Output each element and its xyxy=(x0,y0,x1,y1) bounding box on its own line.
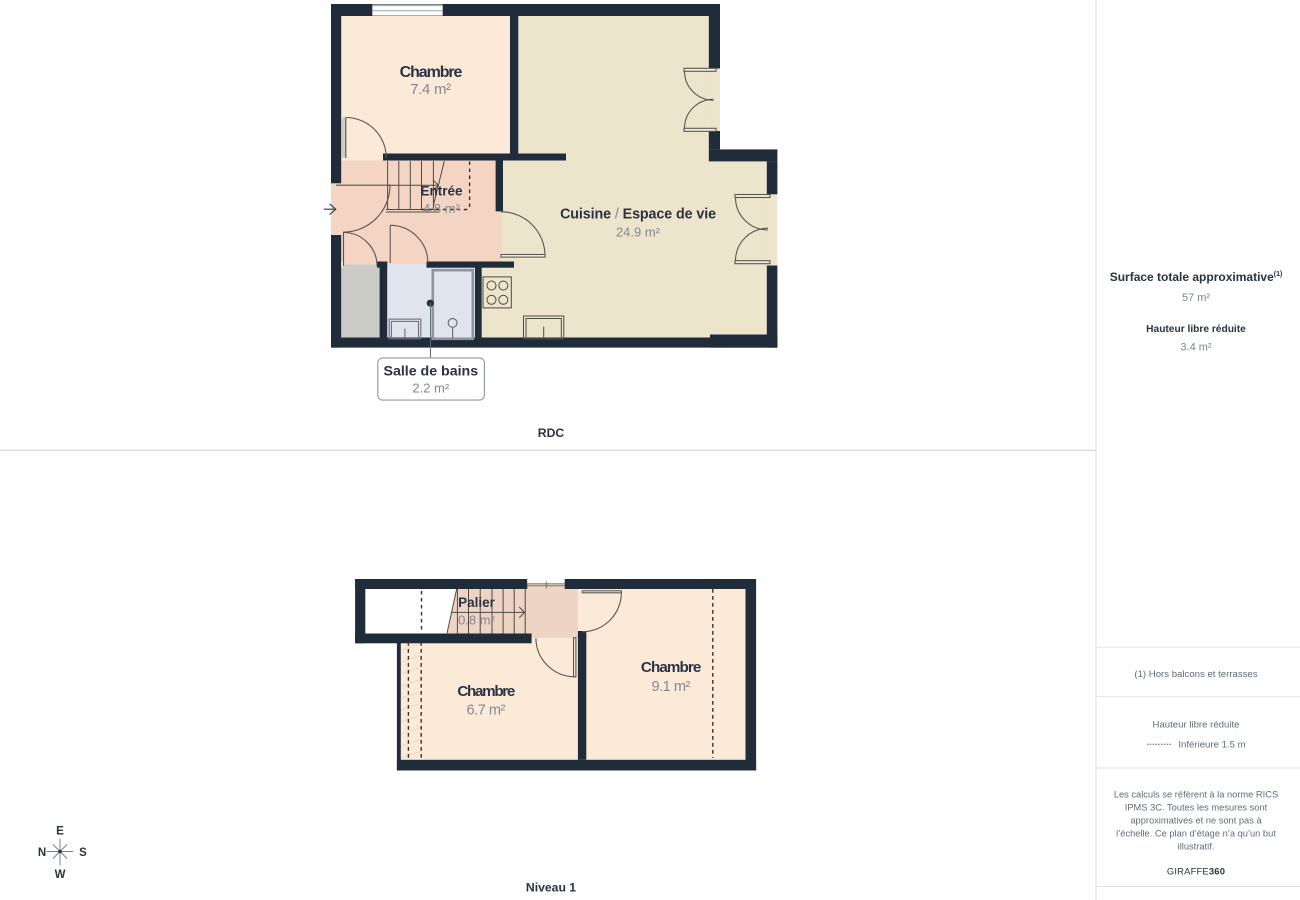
svg-text:illustratif.: illustratif. xyxy=(1178,842,1215,852)
svg-text:E: E xyxy=(56,826,64,838)
svg-text:Palier: Palier xyxy=(458,595,496,610)
svg-text:Surface totale approximative(1: Surface totale approximative(1) xyxy=(1110,270,1283,284)
svg-text:0.8 m²: 0.8 m² xyxy=(458,613,496,628)
svg-text:Les calculs se réfèrent à la n: Les calculs se réfèrent à la norme RICS xyxy=(1114,790,1278,800)
svg-text:Entrée: Entrée xyxy=(420,183,463,198)
svg-text:Niveau 1: Niveau 1 xyxy=(526,881,576,895)
svg-text:3.4 m²: 3.4 m² xyxy=(1180,342,1212,354)
svg-text:N: N xyxy=(38,847,46,859)
svg-text:Hauteur libre réduite: Hauteur libre réduite xyxy=(1153,720,1240,731)
svg-text:approximatives et ne sont pas: approximatives et ne sont pas à xyxy=(1130,816,1262,826)
svg-text:(1) Hors balcons et terrasses: (1) Hors balcons et terrasses xyxy=(1134,669,1257,680)
svg-text:2.2 m²: 2.2 m² xyxy=(412,381,450,396)
svg-text:l’échelle. Ce plan d’étage n’a: l’échelle. Ce plan d’étage n’a qu’un but xyxy=(1116,829,1276,839)
svg-text:57 m²: 57 m² xyxy=(1182,292,1210,304)
svg-text:Chambre: Chambre xyxy=(641,659,701,676)
svg-text:Chambre: Chambre xyxy=(457,683,515,700)
svg-text:IPMS 3C. Toutes les mesures so: IPMS 3C. Toutes les mesures sont xyxy=(1125,803,1268,813)
svg-text:RDC: RDC xyxy=(538,426,565,440)
svg-text:4.8 m²: 4.8 m² xyxy=(423,201,461,216)
svg-text:W: W xyxy=(55,869,66,881)
svg-text:Chambre: Chambre xyxy=(400,64,463,81)
svg-text:Cuisine / Espace de vie: Cuisine / Espace de vie xyxy=(560,206,716,222)
svg-text:S: S xyxy=(79,847,87,859)
svg-text:6.7 m²: 6.7 m² xyxy=(467,703,506,719)
svg-text:24.9 m²: 24.9 m² xyxy=(616,225,661,240)
svg-text:Inférieure 1.5 m: Inférieure 1.5 m xyxy=(1178,740,1245,751)
svg-text:Salle de bains: Salle de bains xyxy=(383,363,478,379)
svg-text:9.1 m²: 9.1 m² xyxy=(652,679,691,695)
svg-text:GIRAFFE360: GIRAFFE360 xyxy=(1167,866,1225,877)
svg-text:7.4 m²: 7.4 m² xyxy=(410,81,451,98)
svg-text:Hauteur libre réduite: Hauteur libre réduite xyxy=(1146,324,1246,335)
